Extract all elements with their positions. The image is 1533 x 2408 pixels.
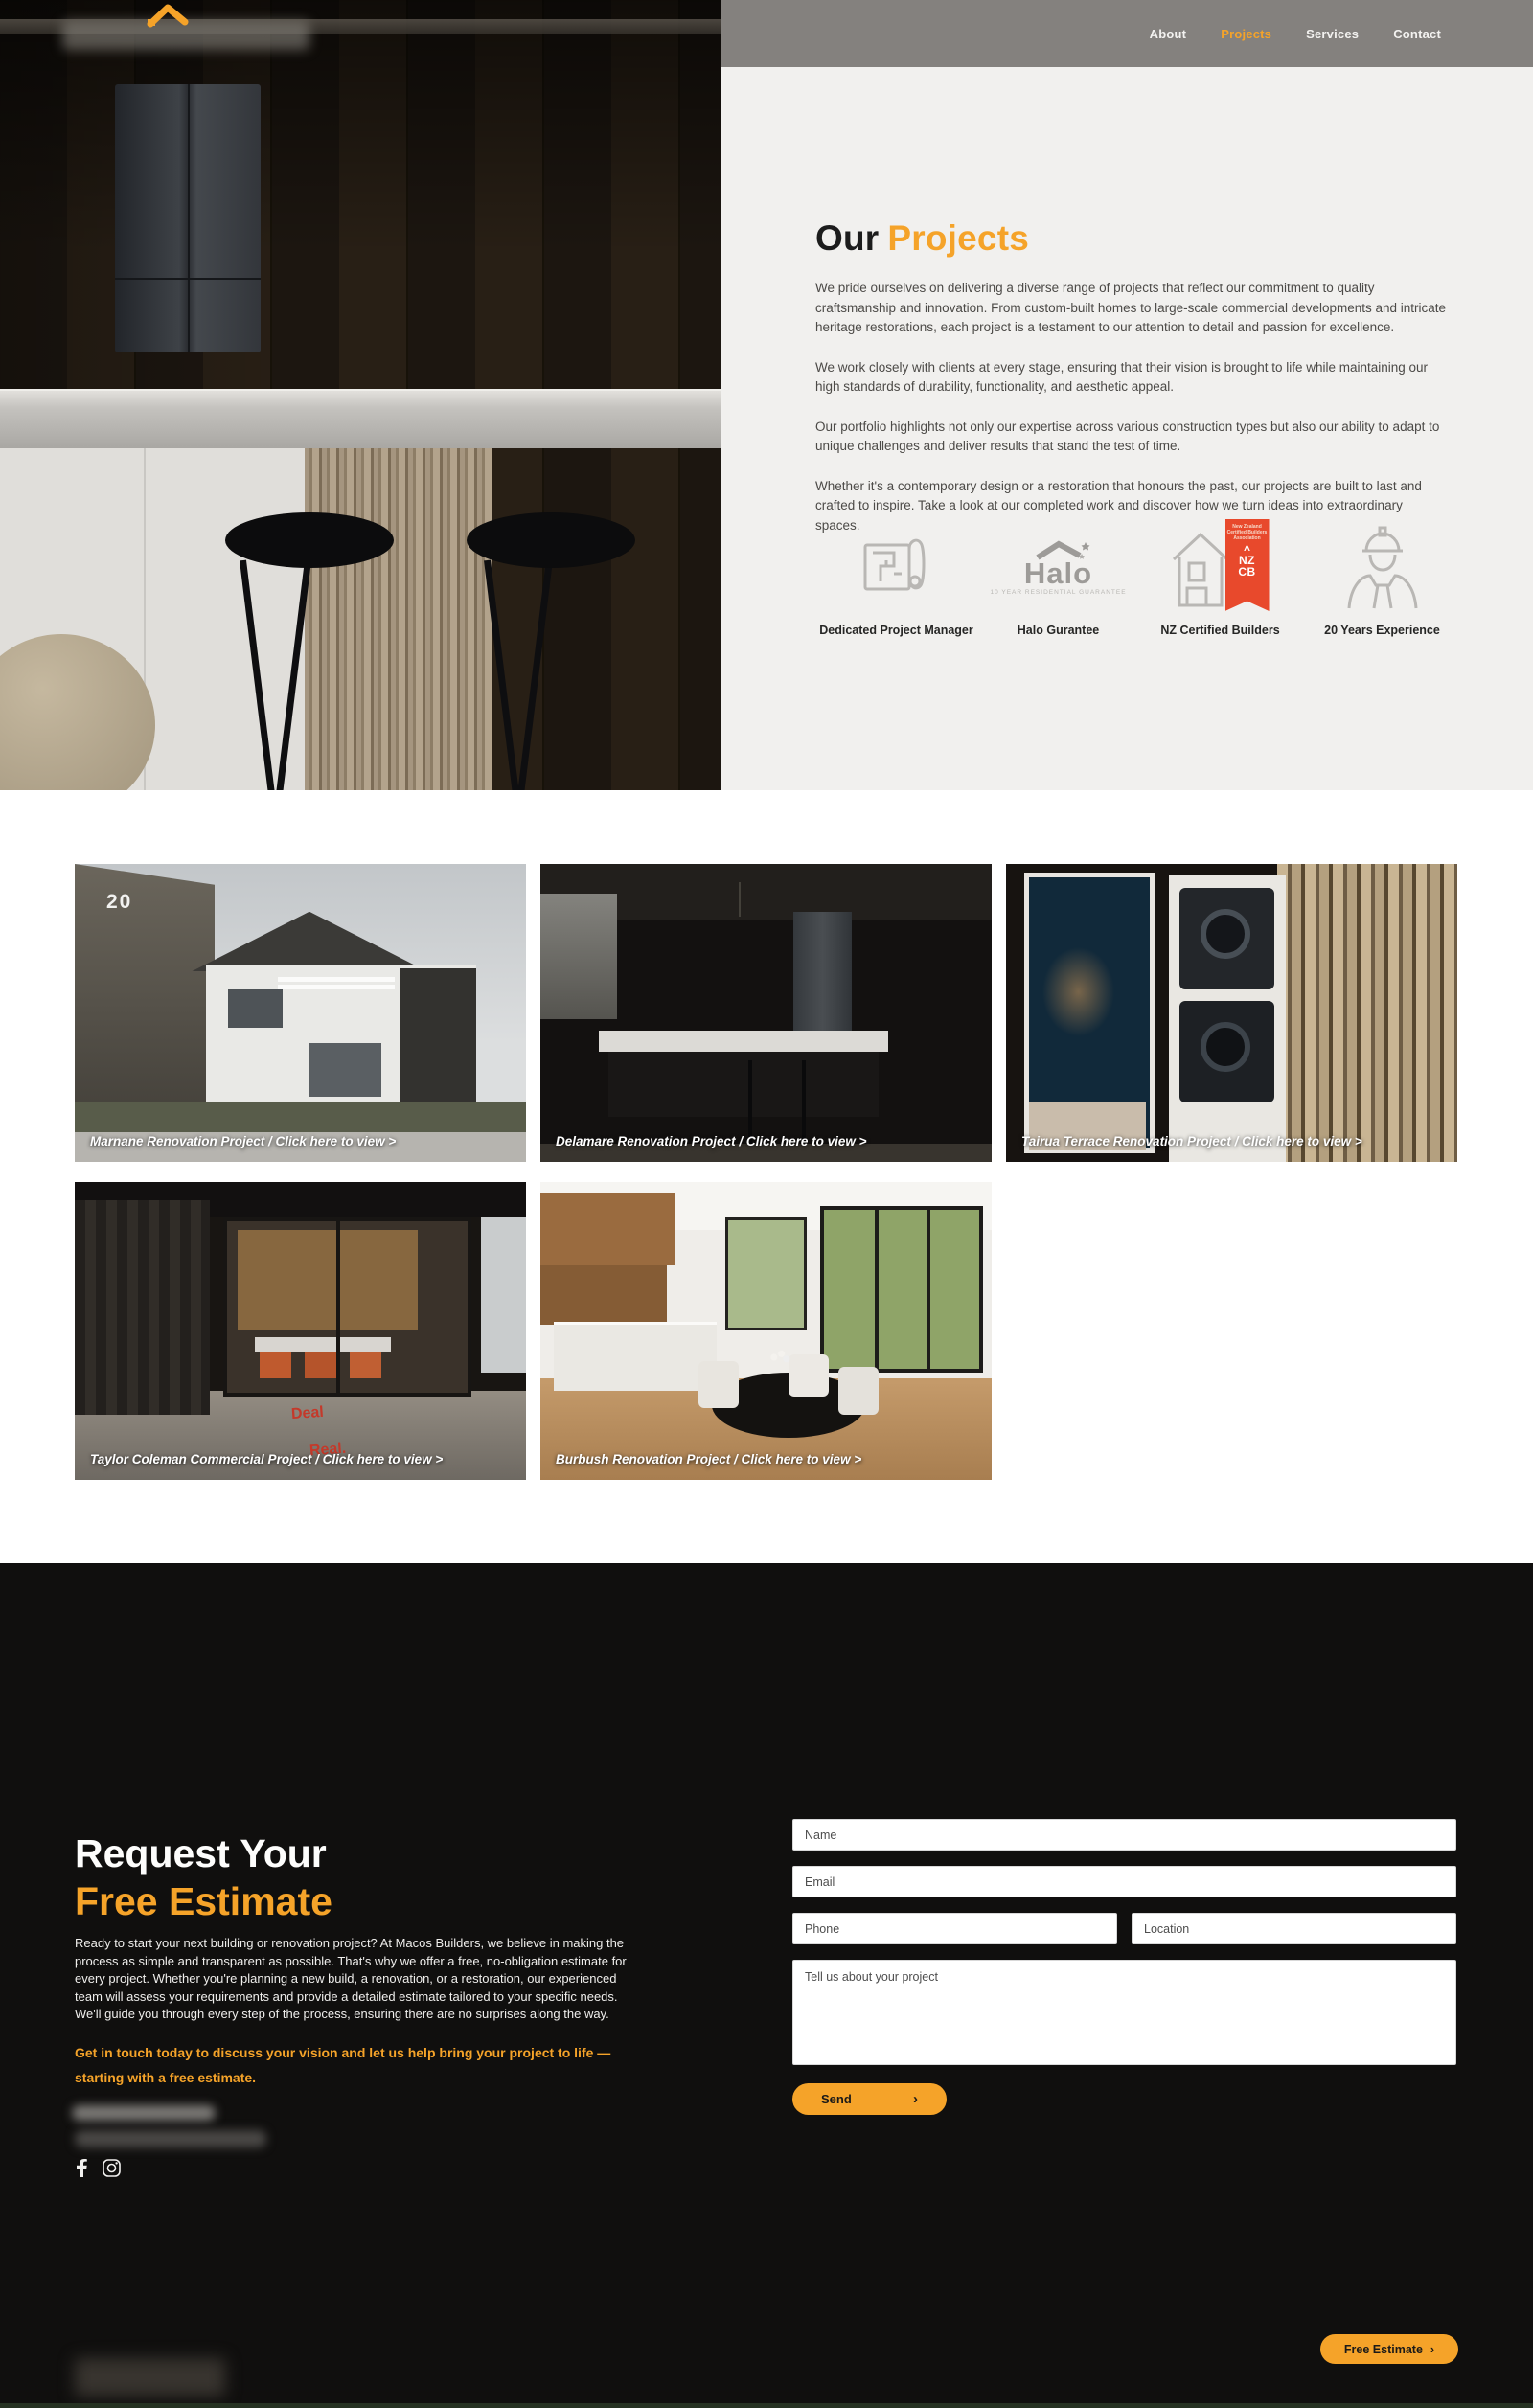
estimate-title-line2: Free Estimate [75, 1879, 332, 1923]
send-button-label: Send [821, 2092, 852, 2106]
estimate-cta-text: Get in touch today to discuss your visio… [75, 2040, 611, 2090]
page-title: OurProjects [815, 218, 1448, 259]
photo-curtains [75, 1200, 210, 1415]
estimate-title: Request Your Free Estimate [75, 1829, 332, 1925]
photo-house-number: 20 [106, 891, 132, 914]
photo-marble-column [305, 448, 492, 790]
send-button[interactable]: Send › [792, 2083, 947, 2115]
free-estimate-section: Request Your Free Estimate Ready to star… [0, 1563, 1533, 2408]
nav-item-contact[interactable]: Contact [1393, 27, 1441, 41]
phone-field[interactable] [792, 1913, 1117, 1944]
photo-window [540, 894, 617, 1019]
photo-orange-chair [305, 1352, 336, 1378]
top-nav: About Projects Services Contact [721, 0, 1533, 67]
hero-kitchen-photo [0, 0, 721, 790]
photo-window [228, 989, 283, 1028]
photo-bright-window [481, 1217, 526, 1373]
photo-wood-cabinets [540, 1193, 675, 1265]
bottom-edge-strip [0, 2403, 1533, 2408]
feature-project-manager: Dedicated Project Manager [815, 519, 977, 638]
photo-dining-chair [789, 1354, 829, 1397]
page-title-accent: Projects [887, 218, 1029, 258]
project-card-marnane[interactable]: 20 Marnane Renovation Project / Click he… [75, 864, 526, 1162]
feature-label: NZ Certified Builders [1139, 623, 1301, 638]
photo-balcony-rail [278, 977, 395, 982]
estimate-body-text: Ready to start your next building or ren… [75, 1935, 629, 2024]
feature-label: Halo Gurantee [977, 623, 1139, 638]
photo-dark-cladding [400, 968, 476, 1114]
email-field[interactable] [792, 1866, 1456, 1897]
project-card-delamare[interactable]: Delamare Renovation Project / Click here… [540, 864, 992, 1162]
photo-fridge [115, 84, 261, 352]
feature-badges-row: Dedicated Project Manager Halo 10 YEAR R… [815, 519, 1463, 638]
nzcb-code-cb: CB [1225, 566, 1270, 578]
brand-roof-logo-icon [147, 3, 189, 28]
instagram-icon[interactable] [103, 2159, 121, 2177]
halo-subtext: 10 YEAR RESIDENTIAL GUARANTEE [990, 589, 1126, 596]
estimate-title-line1: Request Your [75, 1831, 327, 1875]
photo-flowers [766, 1349, 791, 1366]
project-caption[interactable]: Marnane Renovation Project / Click here … [90, 1134, 396, 1148]
photo-stool [467, 512, 635, 568]
project-message-field[interactable] [792, 1960, 1456, 2065]
nav-item-services[interactable]: Services [1306, 27, 1359, 41]
project-card-burbush[interactable]: Burbush Renovation Project / Click here … [540, 1182, 992, 1480]
photo-window [309, 1043, 381, 1097]
photo-garden-window [725, 1217, 807, 1330]
hero-right-panel: About Projects Services Contact OurProje… [721, 0, 1533, 790]
name-field[interactable] [792, 1819, 1456, 1851]
photo-glass-mullion [336, 1217, 340, 1397]
nav-item-projects[interactable]: Projects [1221, 27, 1271, 41]
feature-halo-guarantee: Halo 10 YEAR RESIDENTIAL GUARANTEE Halo … [977, 519, 1139, 638]
photo-wood-slats [1277, 864, 1457, 1162]
redacted-email [75, 2130, 266, 2147]
photo-wood-panel [540, 1265, 667, 1325]
photo-meeting-table [255, 1337, 390, 1352]
builder-icon [1301, 519, 1463, 615]
photo-dining-chair [698, 1361, 739, 1409]
photo-orange-chair [350, 1352, 381, 1378]
nzcb-small-text: New Zealand Certified Builders Associati… [1225, 519, 1270, 541]
social-links [77, 2159, 121, 2177]
feature-label: 20 Years Experience [1301, 623, 1463, 638]
project-card-tairua[interactable]: Tairua Terrace Renovation Project / Clic… [1006, 864, 1457, 1162]
hero-section: About Projects Services Contact OurProje… [0, 0, 1533, 790]
photo-roof [192, 912, 426, 971]
photo-orange-chair [260, 1352, 291, 1378]
photo-island-top [599, 1031, 887, 1052]
photo-washer-door [1201, 909, 1250, 959]
project-caption[interactable]: Delamare Renovation Project / Click here… [556, 1134, 867, 1148]
facebook-icon[interactable] [77, 2159, 87, 2177]
nzcb-ribbon: New Zealand Certified Builders Associati… [1225, 519, 1270, 611]
location-field[interactable] [1132, 1913, 1456, 1944]
projects-gallery: 20 Marnane Renovation Project / Click he… [0, 790, 1533, 1563]
page-title-prefix: Our [815, 218, 879, 258]
photo-wood-wall [238, 1230, 418, 1331]
photo-garden-windows [820, 1206, 983, 1373]
photo-island-base [608, 1052, 880, 1117]
intro-paragraph: Our portfolio highlights not only our ex… [815, 418, 1448, 457]
intro-paragraph: We pride ourselves on delivering a diver… [815, 279, 1448, 338]
photo-lamp-glow [1042, 947, 1114, 1036]
intro-block: OurProjects We pride ourselves on delive… [815, 67, 1448, 535]
feature-nz-certified: New Zealand Certified Builders Associati… [1139, 519, 1301, 638]
nav-item-about[interactable]: About [1150, 27, 1187, 41]
redacted-phone [72, 2105, 216, 2121]
free-estimate-button-label: Free Estimate [1344, 2343, 1423, 2356]
intro-paragraph: We work closely with clients at every st… [815, 358, 1448, 398]
project-caption[interactable]: Tairua Terrace Renovation Project / Clic… [1021, 1134, 1362, 1148]
project-caption[interactable]: Burbush Renovation Project / Click here … [556, 1452, 861, 1466]
blueprint-icon [815, 519, 977, 615]
photo-fridge [793, 912, 852, 1031]
photo-bushes [75, 1102, 526, 1132]
free-estimate-button[interactable]: Free Estimate › [1320, 2334, 1458, 2364]
redacted-footer-logo [75, 2358, 225, 2397]
photo-stool [225, 512, 394, 568]
send-arrow-icon: › [913, 2091, 918, 2107]
project-caption[interactable]: Taylor Coleman Commercial Project / Clic… [90, 1452, 443, 1466]
halo-logo: Halo 10 YEAR RESIDENTIAL GUARANTEE [977, 519, 1139, 615]
project-card-taylor-coleman[interactable]: Deal Real. Taylor Coleman Commercial Pro… [75, 1182, 526, 1480]
photo-dryer-door [1201, 1022, 1250, 1072]
nzcb-badge-icon: New Zealand Certified Builders Associati… [1139, 519, 1301, 615]
free-estimate-arrow-icon: › [1430, 2343, 1434, 2356]
photo-countertop [0, 391, 721, 448]
photo-dining-chair [838, 1367, 879, 1415]
photo-island [554, 1325, 717, 1390]
halo-wordmark: Halo [990, 561, 1126, 586]
feature-experience: 20 Years Experience [1301, 519, 1463, 638]
feature-label: Dedicated Project Manager [815, 623, 977, 638]
photo-pendant-light [739, 882, 741, 917]
photo-decal-text: Deal [290, 1404, 324, 1423]
